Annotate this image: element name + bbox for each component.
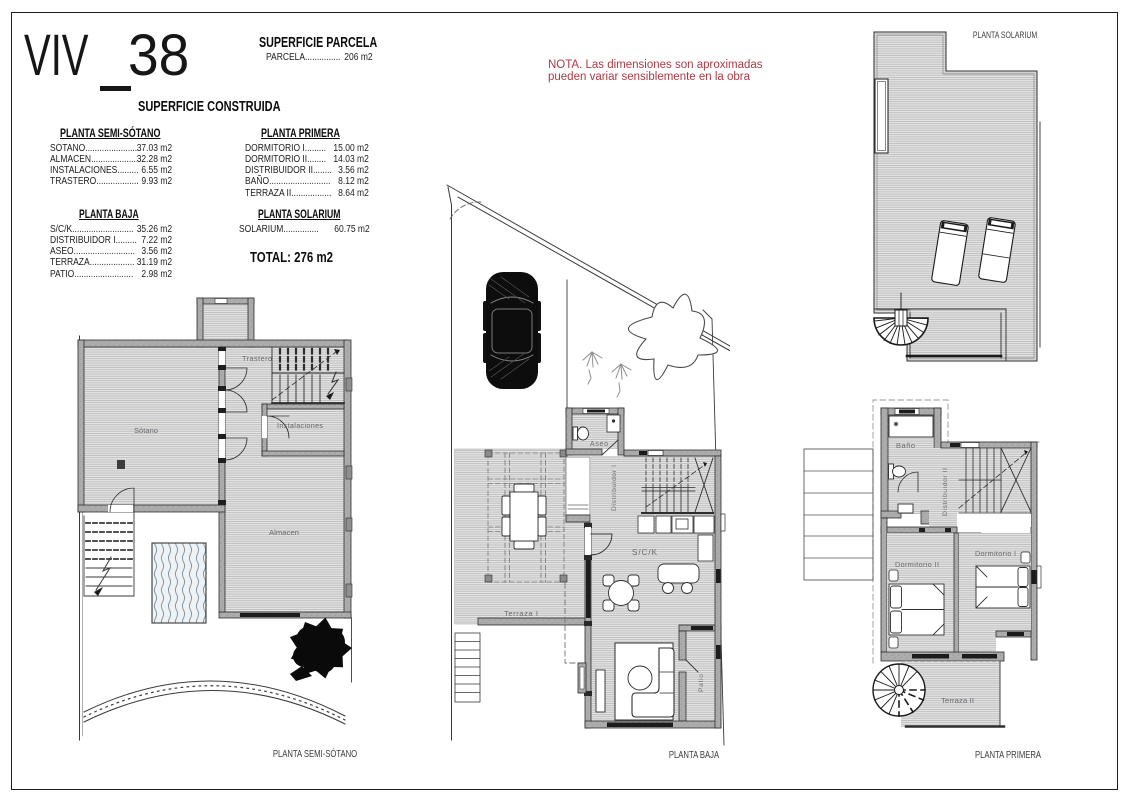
svg-text:S/C/K: S/C/K <box>632 548 658 557</box>
svg-text:Sótano: Sótano <box>134 426 158 435</box>
svg-text:Terraza I: Terraza I <box>504 609 538 618</box>
svg-text:Distribuidor I: Distribuidor I <box>611 465 618 511</box>
svg-text:Dormitorio II: Dormitorio II <box>895 560 939 569</box>
svg-text:Distribuidor II: Distribuidor II <box>942 468 949 516</box>
svg-text:Aseo: Aseo <box>590 441 608 448</box>
svg-text:Terraza II: Terraza II <box>941 696 974 705</box>
svg-text:Trastero: Trastero <box>242 354 272 363</box>
svg-text:Dormitorio I: Dormitorio I <box>975 549 1016 558</box>
svg-text:Baño: Baño <box>896 441 915 450</box>
svg-text:Instalaciones: Instalaciones <box>277 421 323 430</box>
svg-text:Patio: Patio <box>698 674 705 692</box>
svg-text:Almacen: Almacen <box>269 528 299 537</box>
